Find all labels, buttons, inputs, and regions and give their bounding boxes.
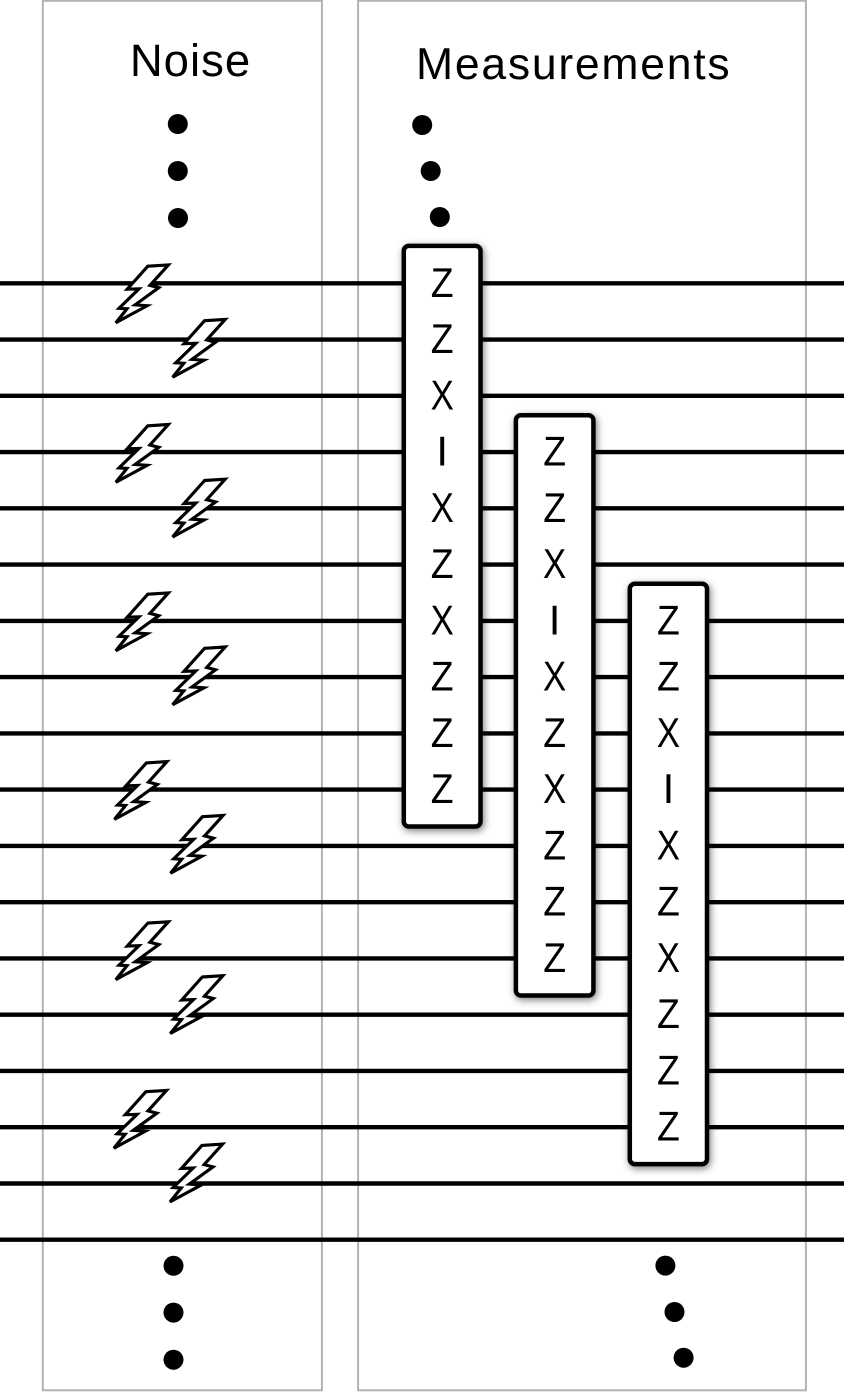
svg-text:I: I [549,596,561,643]
svg-text:Z: Z [431,540,454,587]
svg-text:Z: Z [543,428,566,475]
svg-text:Z: Z [431,653,454,700]
svg-text:X: X [431,596,454,643]
svg-text:Z: Z [657,596,680,643]
svg-text:Z: Z [431,709,454,756]
svg-text:Noise: Noise [130,35,251,86]
svg-text:I: I [663,765,675,812]
svg-text:Z: Z [657,878,680,925]
svg-text:Z: Z [657,1103,680,1150]
svg-text:X: X [543,653,566,700]
svg-text:Z: Z [543,821,566,868]
svg-text:Z: Z [657,990,680,1037]
svg-text:Z: Z [431,315,454,362]
svg-text:X: X [543,765,566,812]
svg-text:Z: Z [543,878,566,925]
svg-text:Z: Z [543,709,566,756]
svg-text:X: X [543,540,566,587]
svg-text:Z: Z [431,259,454,306]
svg-text:Z: Z [543,484,566,531]
svg-text:X: X [657,709,680,756]
svg-text:X: X [657,821,680,868]
svg-text:Z: Z [657,653,680,700]
svg-text:X: X [657,934,680,981]
svg-text:Measurements: Measurements [416,40,731,89]
svg-text:X: X [431,371,454,418]
svg-text:Z: Z [431,765,454,812]
svg-text:Z: Z [543,934,566,981]
svg-text:I: I [436,428,448,475]
svg-text:X: X [431,484,454,531]
svg-text:Z: Z [657,1046,680,1093]
